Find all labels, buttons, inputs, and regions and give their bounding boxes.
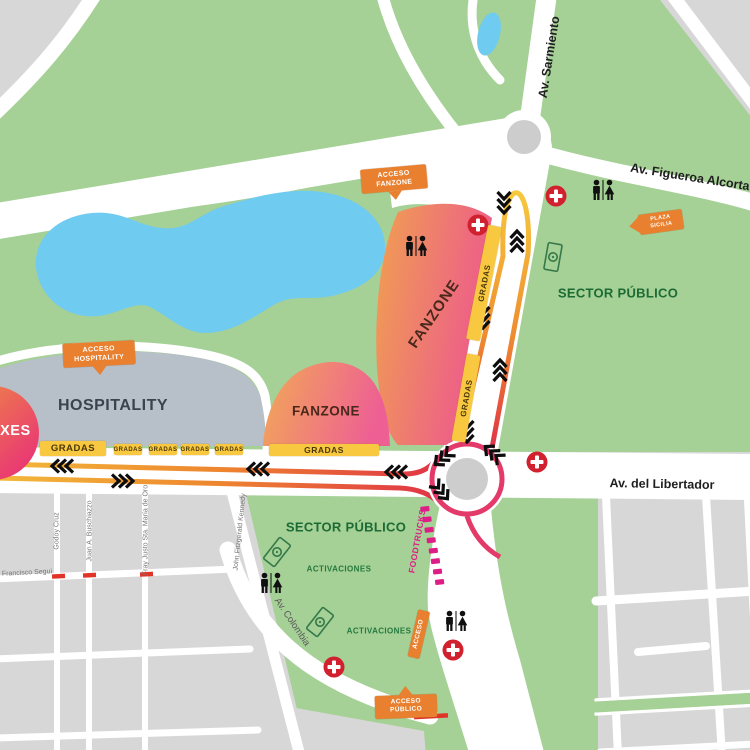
gradas-label: GRADAS [304, 445, 344, 455]
gradas-label: GRADAS [114, 447, 143, 453]
hospitality-zone [0, 351, 266, 446]
base-map [0, 0, 750, 750]
medical-cross-icon [527, 452, 548, 473]
medical-cross-icon [468, 215, 489, 236]
gradas-label: GRADAS [215, 447, 244, 453]
gradas-strip-center: GRADAS [269, 444, 379, 456]
gradas-strip-small-2: GRADAS [149, 444, 177, 455]
medical-cross-icon [324, 657, 345, 678]
medical-cross-icon [546, 186, 567, 207]
gradas-strip-small-4: GRADAS [215, 444, 243, 455]
badge-acceso-publico: ACCESO PÚBLICO [375, 694, 438, 719]
gradas-strip-main: GRADAS [40, 441, 106, 456]
gradas-strip-small-3: GRADAS [181, 444, 209, 455]
medical-cross-icon [443, 640, 464, 661]
badge-acceso-hospitality: ACCESO HOSPITALITY [62, 340, 135, 368]
gradas-label: GRADAS [51, 443, 95, 454]
roundabout-north-island [507, 120, 541, 154]
gradas-label: GRADAS [149, 447, 178, 453]
gradas-strip-small-1: GRADAS [114, 444, 142, 455]
gradas-label: GRADAS [181, 447, 210, 453]
event-map: Av. Sarmiento Av. Figueroa Alcorta Av. d… [0, 0, 750, 750]
